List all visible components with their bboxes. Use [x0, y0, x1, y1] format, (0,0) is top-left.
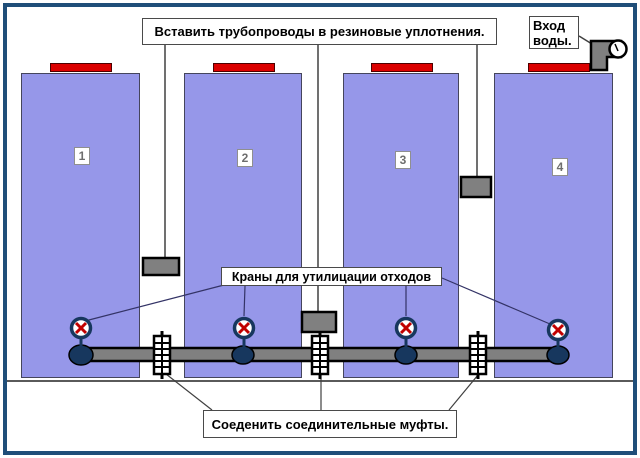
pointer-line-valve-4	[442, 278, 550, 324]
septic-diagram: 1 2 3 4 Вставить трубопроводы в резиновы…	[0, 0, 640, 458]
plumbing-overlay	[0, 0, 640, 458]
waste-valve-3-icon	[397, 319, 416, 349]
outlet-boss-3	[395, 346, 417, 364]
pointer-line-valve-1	[85, 285, 224, 321]
coupling-sleeve-1	[154, 331, 170, 379]
tank-1-number: 1	[74, 147, 90, 165]
waste-valve-1-icon	[72, 319, 91, 349]
tank-2-number: 2	[237, 149, 253, 167]
rubber-seal-1	[143, 258, 179, 275]
water-inlet-elbow-icon	[591, 41, 627, 71]
waste-valve-2-icon	[235, 319, 254, 349]
outlet-boss-2	[232, 346, 254, 364]
pointer-line-valve-2	[244, 286, 245, 316]
rubber-seal-2	[302, 312, 336, 332]
couplings-label: Соеденить соединительные муфты.	[203, 410, 457, 438]
pointer-line-coupling-3	[449, 375, 478, 410]
coupling-sleeve-2	[312, 331, 328, 379]
tank-3-number: 3	[395, 151, 411, 169]
pointer-line-coupling-1	[166, 374, 212, 410]
waste-valves-label: Краны для утилицации отходов	[221, 267, 442, 286]
water-inlet-label: Вход воды.	[529, 16, 579, 49]
coupling-sleeve-3	[470, 331, 486, 379]
tank-4-number: 4	[552, 158, 568, 176]
rubber-seal-3	[461, 177, 491, 197]
top-note-label: Вставить трубопроводы в резиновые уплотн…	[142, 18, 497, 45]
waste-valve-4-icon	[549, 321, 568, 350]
